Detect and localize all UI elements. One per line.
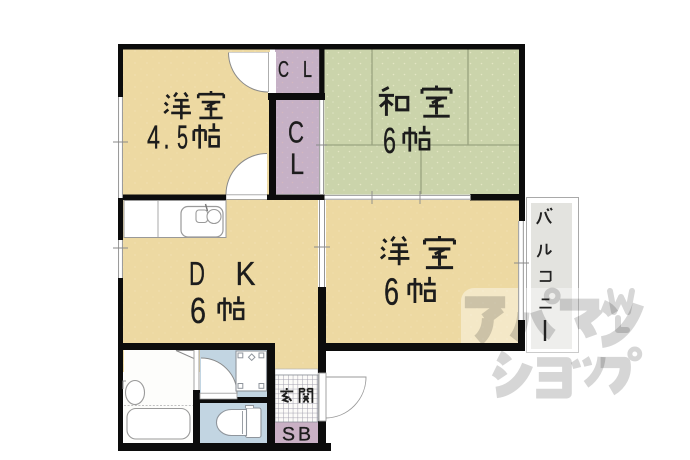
svg-text:C: C (288, 115, 304, 150)
svg-text:6: 6 (383, 120, 396, 161)
svg-text:C: C (278, 56, 289, 82)
svg-text:L: L (303, 56, 312, 82)
svg-text:.: . (164, 119, 170, 156)
svg-text:L: L (290, 148, 304, 181)
svg-text:B: B (298, 425, 311, 446)
svg-text:5: 5 (177, 119, 188, 156)
svg-text:6: 6 (384, 272, 399, 314)
svg-text:K: K (236, 255, 256, 292)
svg-text:6: 6 (190, 290, 206, 331)
svg-text:4: 4 (147, 119, 160, 156)
svg-text:S: S (282, 425, 295, 446)
svg-text:D: D (189, 255, 205, 292)
